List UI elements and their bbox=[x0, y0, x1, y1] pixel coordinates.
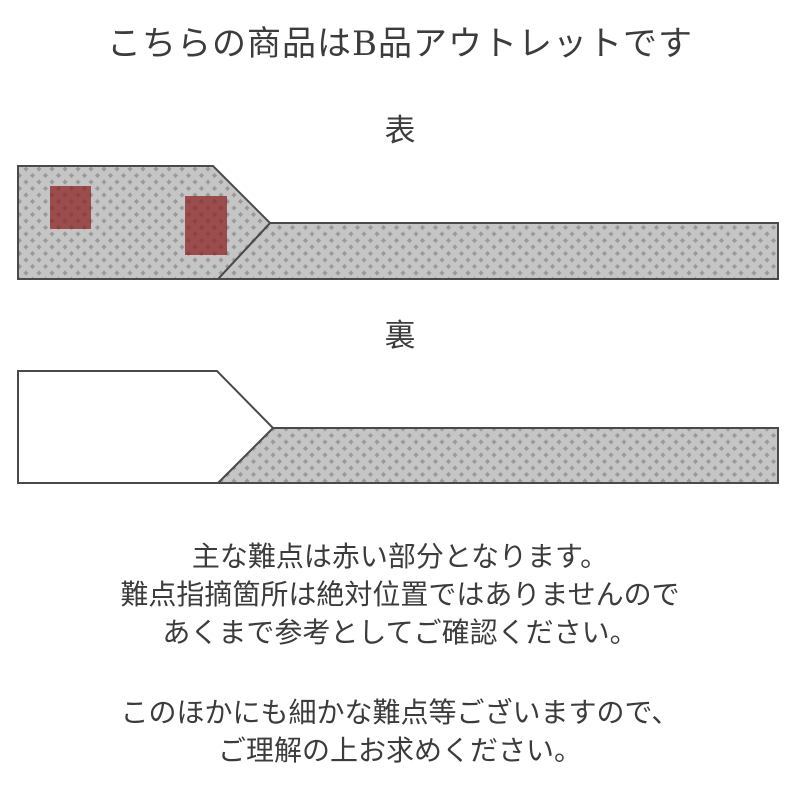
note-line: ご理解の上お求めください。 bbox=[0, 732, 800, 770]
defect-marker-2 bbox=[185, 196, 227, 255]
note-line: 難点指摘箇所は絶対位置ではありませんので bbox=[0, 576, 800, 614]
back-narrow-section bbox=[218, 428, 778, 483]
defect-marker-1 bbox=[50, 186, 91, 229]
front-side-label: 表 bbox=[0, 114, 800, 148]
back-obi-shape bbox=[0, 370, 800, 486]
back-side-label: 裏 bbox=[0, 319, 800, 353]
note-line: このほかにも細かな難点等ございますので、 bbox=[0, 694, 800, 732]
defect-explanation-note: 主な難点は赤い部分となります。 難点指摘箇所は絶対位置ではありませんので あくま… bbox=[0, 538, 800, 652]
note-line: 主な難点は赤い部分となります。 bbox=[0, 538, 800, 576]
front-obi-shape bbox=[0, 165, 800, 282]
purchase-disclaimer-note: このほかにも細かな難点等ございますので、 ご理解の上お求めください。 bbox=[0, 694, 800, 770]
note-line: あくまで参考としてご確認ください。 bbox=[0, 614, 800, 652]
back-wide-section bbox=[18, 371, 273, 483]
front-narrow-section bbox=[218, 223, 778, 279]
page-title: こちらの商品はB品アウトレットです bbox=[0, 24, 800, 65]
product-outlet-notice-image: こちらの商品はB品アウトレットです 表 裏 bbox=[0, 0, 800, 800]
